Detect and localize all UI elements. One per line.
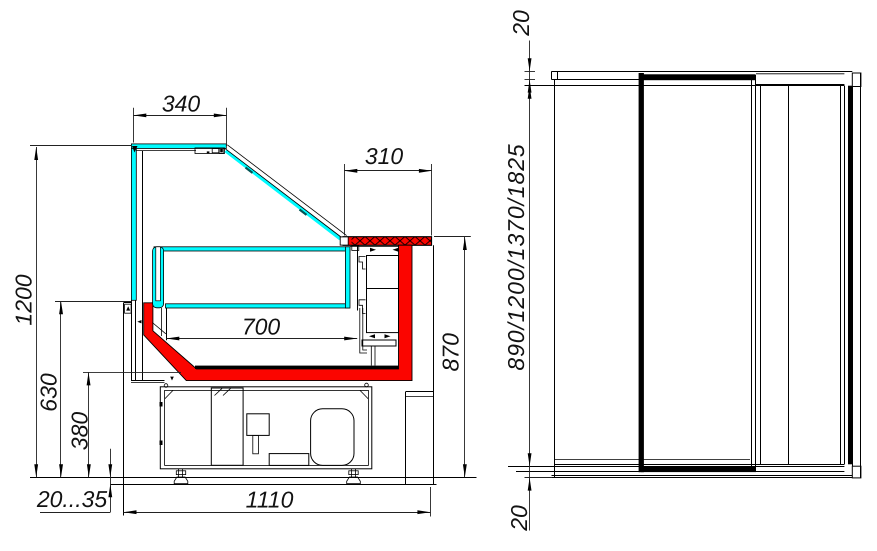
svg-text:700: 700 [242, 314, 281, 340]
svg-text:20...35: 20...35 [36, 486, 108, 512]
svg-text:310: 310 [365, 143, 404, 169]
svg-text:630: 630 [36, 373, 62, 412]
svg-text:1200: 1200 [11, 274, 37, 325]
svg-text:1110: 1110 [246, 487, 294, 513]
svg-text:870: 870 [438, 333, 464, 372]
svg-text:340: 340 [162, 90, 201, 116]
svg-text:20: 20 [508, 10, 534, 37]
svg-text:890/1200/1370/1825: 890/1200/1370/1825 [503, 143, 529, 370]
svg-text:380: 380 [67, 412, 93, 451]
svg-text:20: 20 [506, 505, 532, 532]
